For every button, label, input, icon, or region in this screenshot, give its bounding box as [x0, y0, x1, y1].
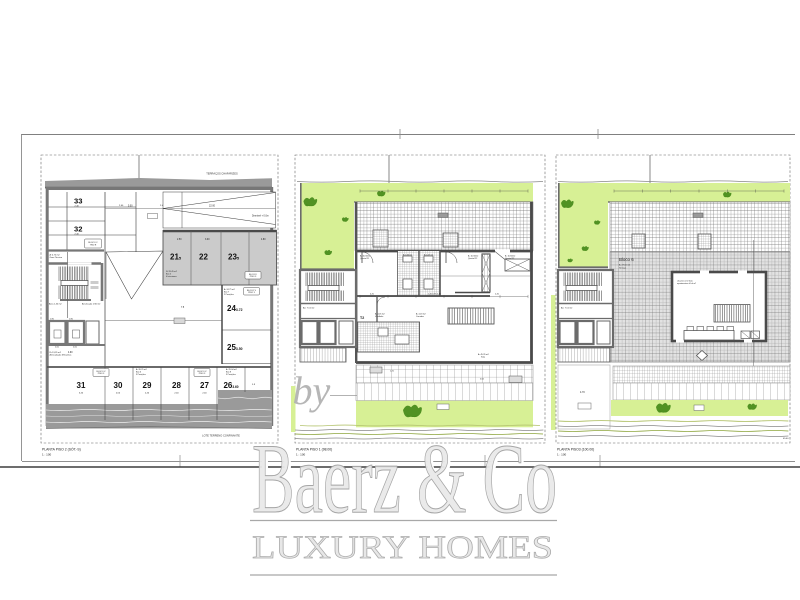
svg-text:TERRAÇOS CHAFARIZES: TERRAÇOS CHAFARIZES	[206, 172, 238, 176]
svg-text:PLANTA PISO 2 (SÓT.-S): PLANTA PISO 2 (SÓT.-S)	[42, 447, 81, 452]
svg-text:29: 29	[143, 381, 152, 390]
svg-text:30: 30	[114, 381, 123, 390]
svg-text:Quarto R2: Quarto R2	[468, 257, 478, 260]
svg-text:28: 28	[172, 381, 181, 390]
svg-text:1 : 100: 1 : 100	[42, 453, 52, 457]
svg-text:4.80: 4.80	[261, 239, 266, 241]
svg-text:Arr. 7.51 m2: Arr. 7.51 m2	[561, 307, 573, 310]
svg-text:Arr. 7.51 m2: Arr. 7.51 m2	[303, 307, 315, 310]
svg-text:Vestíbulo: Vestíbulo	[375, 315, 384, 318]
svg-text:4 lotaciones: 4 lotaciones	[166, 275, 177, 278]
svg-text:3 Posições: 3 Posições	[136, 373, 146, 376]
svg-text:7950 E: 7950 E	[90, 244, 97, 246]
svg-text:PLANTA PISO3 (100.00): PLANTA PISO3 (100.00)	[557, 448, 594, 452]
svg-text:45.40: 45.40	[783, 438, 789, 440]
svg-text:1.40 0.95 2.40: 1.40 0.95 2.40	[428, 294, 442, 296]
svg-text:apartmentsv v8 of m²: apartmentsv v8 of m²	[677, 282, 696, 285]
svg-text:PISO 3: PISO 3	[250, 276, 257, 278]
svg-text:Arrecadação 6/Gavetas: Arrecadação 6/Gavetas	[50, 354, 72, 357]
svg-text:LUXURY HOMES: LUXURY HOMES	[252, 530, 553, 566]
svg-text:Desnível + 0.0m: Desnível + 0.0m	[252, 216, 269, 218]
svg-text:Terraço: Terraço	[619, 267, 627, 270]
svg-text:Zona Técnica: Zona Técnica	[50, 257, 63, 259]
svg-text:A: 4.47 m2: A: 4.47 m2	[424, 254, 433, 257]
svg-text:PISO 3: PISO 3	[98, 373, 105, 375]
svg-text:PISO 3: PISO 3	[248, 292, 255, 294]
svg-text:2 Posições: 2 Posições	[224, 293, 234, 296]
svg-text:27: 27	[200, 381, 209, 390]
svg-text:PISO 3: PISO 3	[199, 373, 206, 375]
svg-text:3.00: 3.00	[205, 239, 210, 241]
svg-text:Quarto R1: Quarto R1	[360, 257, 370, 260]
svg-text:by: by	[293, 368, 331, 413]
svg-text:32: 32	[74, 225, 82, 234]
svg-text:Corredor: Corredor	[416, 316, 424, 318]
svg-text:T2: T2	[360, 316, 364, 320]
svg-text:LOTE TERRENO CONFINANTE: LOTE TERRENO CONFINANTE	[202, 434, 240, 438]
svg-text:33: 33	[74, 197, 82, 206]
svg-text:Baerz & Co: Baerz & Co	[252, 423, 557, 534]
svg-text:31: 31	[77, 381, 86, 390]
svg-text:A: 4.60 m2: A: 4.60 m2	[403, 254, 412, 257]
svg-text:A: 47.10 m2: A: 47.10 m2	[619, 264, 631, 267]
svg-text:3 Posições: 3 Posições	[226, 373, 236, 376]
svg-text:4.70: 4.70	[580, 391, 585, 394]
svg-text:2.50: 2.50	[177, 239, 182, 241]
svg-text:Área 1.40 m2: Área 1.40 m2	[49, 303, 62, 306]
svg-text:5.00: 5.00	[128, 206, 133, 208]
svg-text:22.00: 22.00	[209, 205, 216, 208]
svg-text:22: 22	[199, 253, 208, 262]
svg-text:chuveiro em Soto: chuveiro em Soto	[677, 280, 693, 283]
svg-text:Arrumação 1/16 m2: Arrumação 1/16 m2	[82, 303, 101, 306]
svg-text:Bloco 6: Bloco 6	[619, 257, 634, 262]
